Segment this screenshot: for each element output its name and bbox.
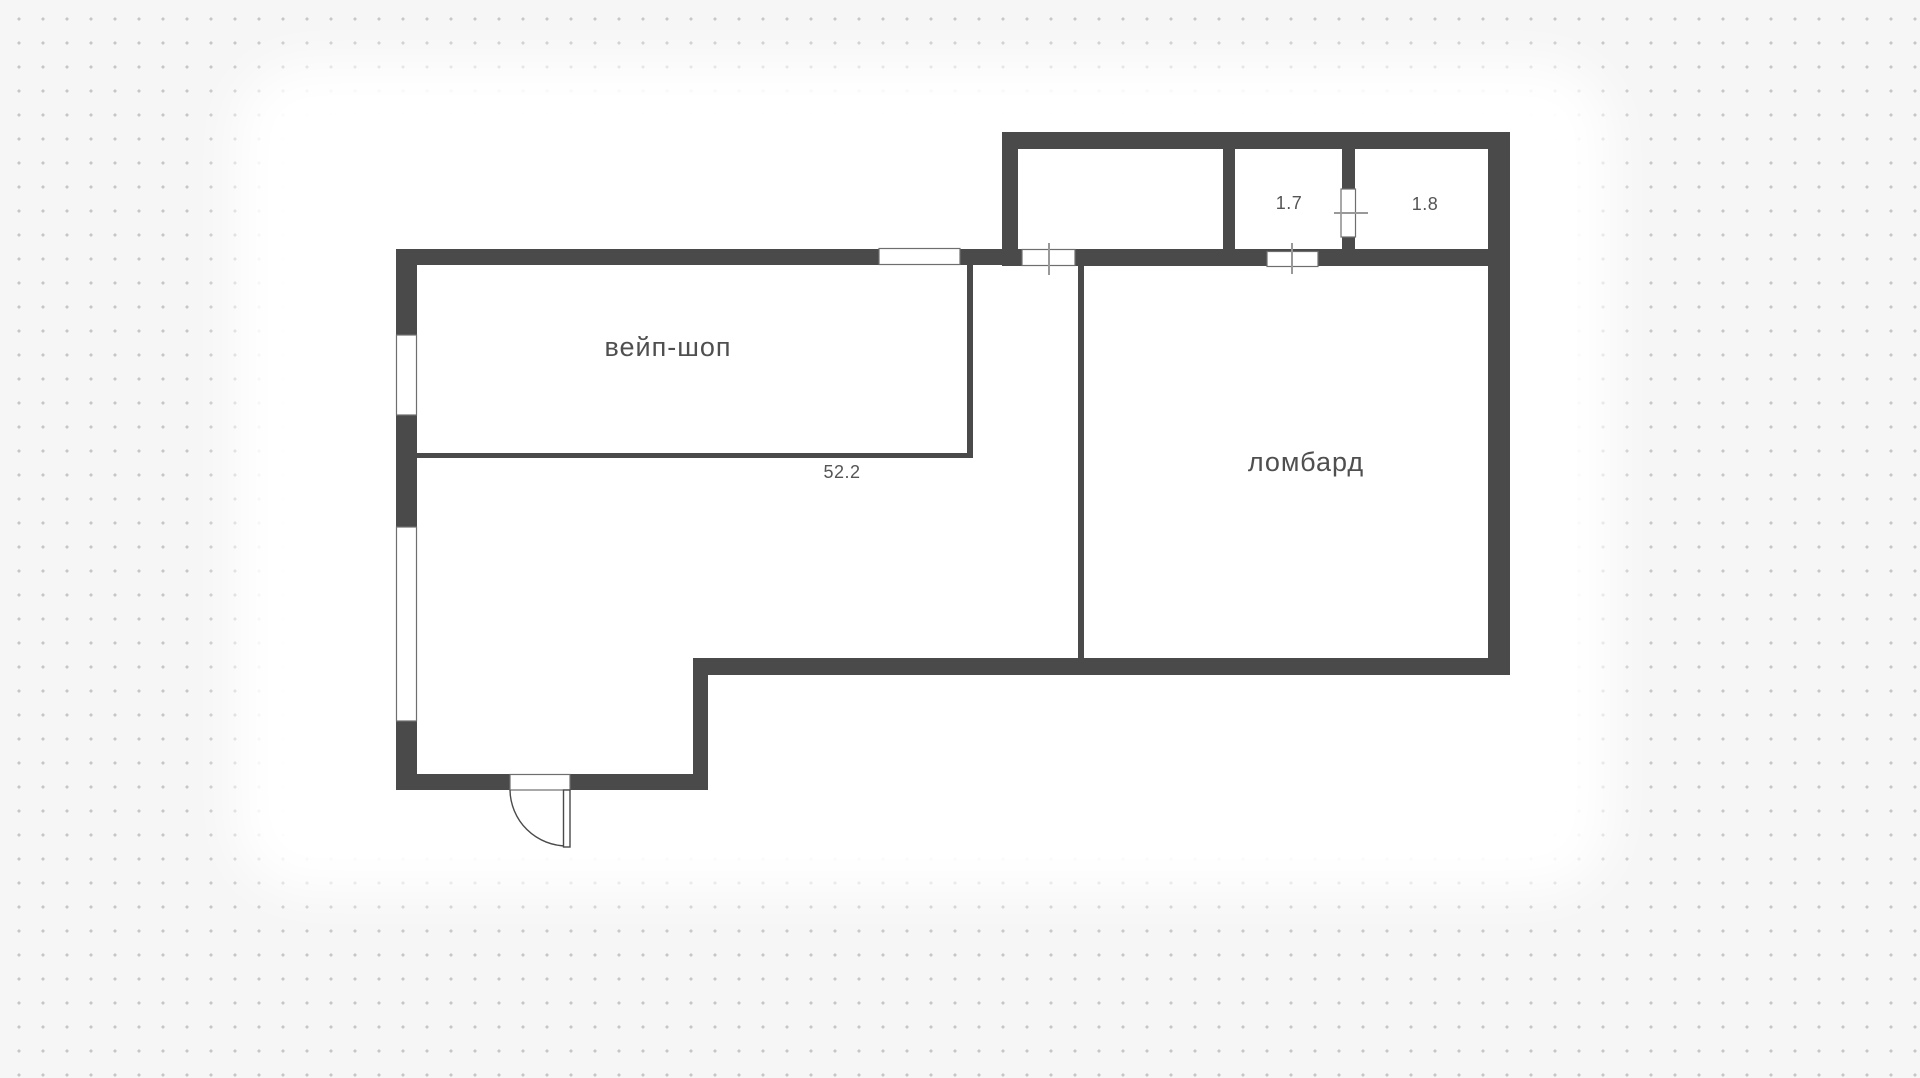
door-swing-arc — [510, 790, 567, 846]
wall-vapeshop-right — [967, 265, 973, 453]
wall-divider-upper-a — [1223, 148, 1235, 266]
window-left-2 — [397, 527, 417, 721]
wall-upper-top — [1002, 132, 1510, 149]
door-leaf — [564, 790, 571, 847]
wall-right-outer — [1488, 132, 1510, 675]
window-left-1 — [397, 335, 417, 415]
vape-shop-area-label: 52.2 — [823, 462, 860, 482]
pawnshop-label: ломбард — [1248, 447, 1364, 477]
window-top — [879, 249, 960, 265]
vape-shop-label: вейп-шоп — [604, 332, 731, 362]
small-room-1-label: 1.7 — [1276, 193, 1303, 213]
wall-pawnshop-left — [1078, 265, 1084, 661]
floor-plan-drawing: вейп-шоп 52.2 ломбард 1.7 1.8 — [0, 0, 1920, 1078]
small-room-2-label: 1.8 — [1412, 194, 1439, 214]
wall-upper-left — [1002, 132, 1018, 266]
floor-plan-page: вейп-шоп 52.2 ломбард 1.7 1.8 — [0, 0, 1920, 1078]
wall-bottom-right — [693, 658, 1510, 675]
door-threshold — [510, 775, 570, 791]
wall-vapeshop-bottom — [417, 453, 973, 458]
entrance-door — [510, 790, 570, 847]
wall-step-vertical — [693, 658, 708, 790]
